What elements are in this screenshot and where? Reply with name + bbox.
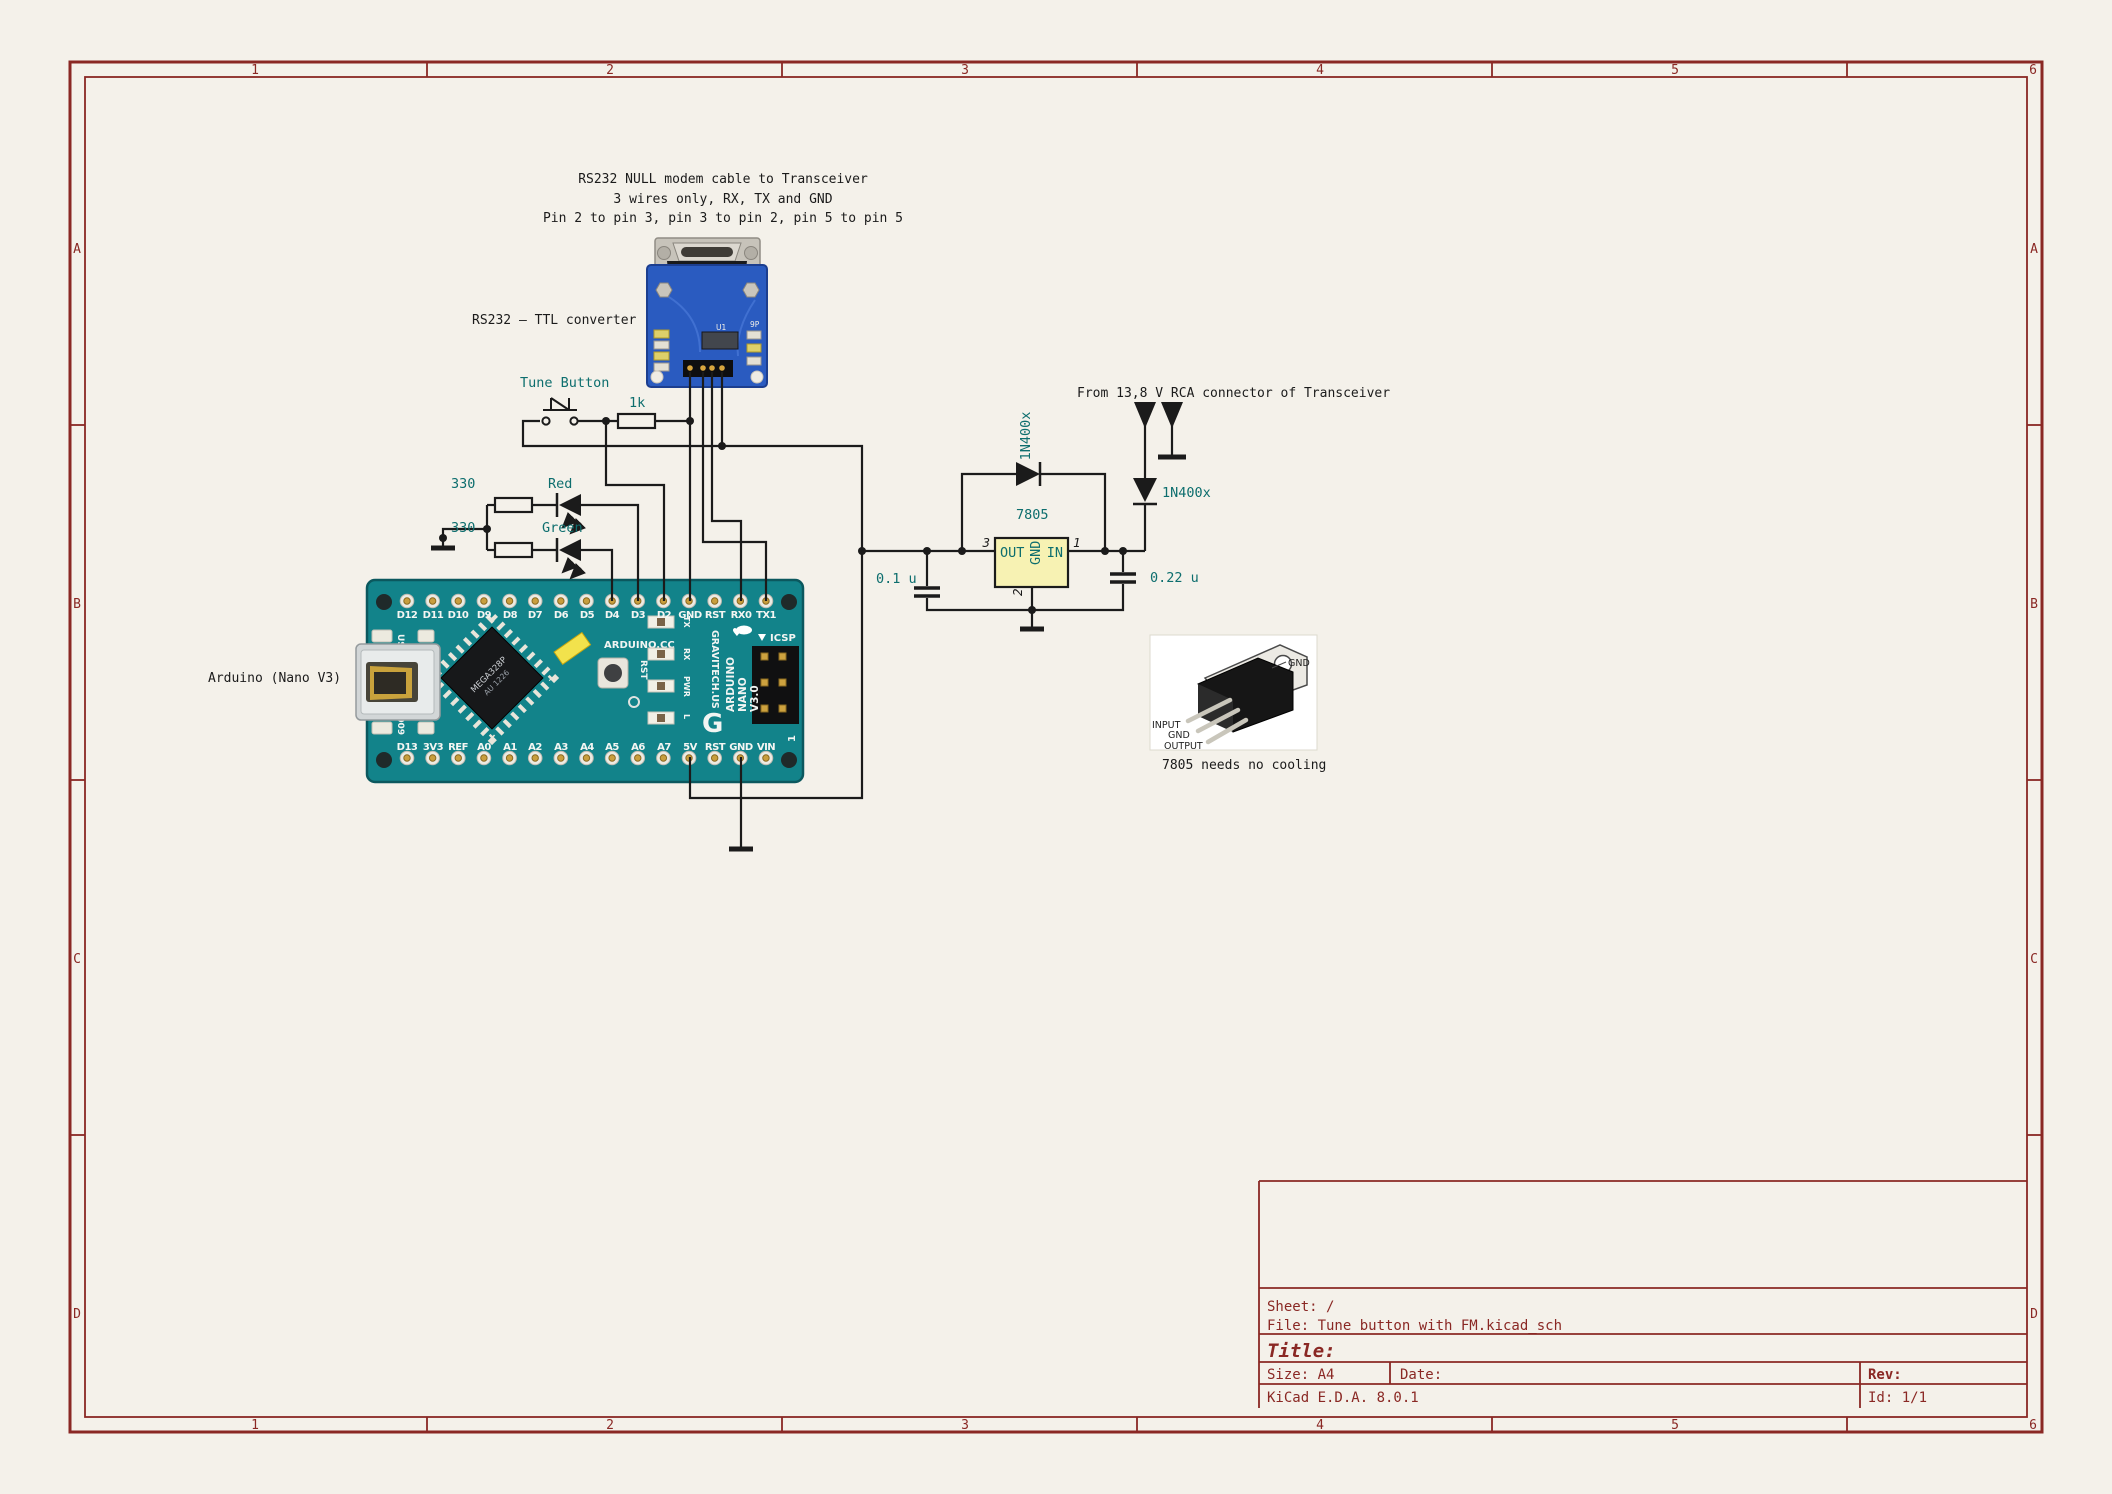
pin-label-bottom: VIN (757, 742, 775, 753)
titleblock-date: Date: (1400, 1367, 1442, 1383)
note-converter: RS232 – TTL converter (472, 313, 637, 328)
pin-label-bottom: 5V (683, 742, 697, 753)
header-pin-center (532, 598, 538, 604)
titleblock-title: Title: (1267, 1340, 1336, 1362)
col-label: 6 (2029, 1418, 2037, 1433)
header-pin-center (558, 755, 564, 761)
titleblock-id: Id: 1/1 (1868, 1390, 1927, 1406)
pin-label-top: D4 (605, 610, 620, 621)
rs232-module-photo: U1 9P (647, 238, 767, 387)
label-led-green: Green (542, 520, 583, 536)
to220-gnd-label: GND (1168, 730, 1190, 741)
header-pin-center (635, 755, 641, 761)
note-null-modem-1: RS232 NULL modem cable to Transceiver (578, 172, 868, 187)
note-supply: From 13,8 V RCA connector of Transceiver (1077, 386, 1390, 401)
led-green (557, 538, 581, 577)
note-null-modem-3: Pin 2 to pin 3, pin 3 to pin 2, pin 5 to… (543, 211, 903, 226)
pin-label-top: GND (678, 610, 702, 621)
brand-line2: NANO (737, 677, 749, 712)
row-label: D (2030, 1307, 2038, 1322)
reg-pin2-number: 2 (1010, 588, 1025, 596)
g-logo: G (702, 709, 723, 739)
label-diode-in: 1N400x (1162, 485, 1211, 501)
label-diode-top: 1N400x (1018, 412, 1034, 461)
col-label: 2 (606, 1418, 614, 1433)
label-c-out: 0.1 u (876, 571, 917, 587)
gravitech-silk: GRAVITECH.US (709, 630, 720, 709)
title-block: Sheet: / File: Tune button with FM.kicad… (1259, 1181, 2027, 1408)
pin-label-bottom: A2 (528, 742, 542, 753)
header-pin-center (583, 755, 589, 761)
header-pin-center (455, 598, 461, 604)
header-pin-center (558, 598, 564, 604)
capacitor-0-22u (1110, 574, 1136, 582)
note-null-modem-2: 3 wires only, RX, TX and GND (613, 192, 832, 207)
rs232-ref-u1: U1 (716, 323, 726, 332)
pin-label-top: TX1 (756, 610, 777, 621)
col-label: 4 (1316, 63, 1324, 78)
pin-label-bottom: A6 (631, 742, 645, 753)
to220-output-label: OUTPUT (1164, 741, 1203, 752)
kicad-schematic-page: 1 2 3 4 5 6 1 2 3 4 5 6 A B C D A B C D (0, 0, 2112, 1494)
label-1k: 1k (629, 395, 645, 411)
col-label: 5 (1671, 63, 1679, 78)
schematic-sheet: 1 2 3 4 5 6 1 2 3 4 5 6 A B C D A B C D (0, 0, 2112, 1494)
pin1-mark: 1 (787, 735, 798, 742)
header-pin-center (429, 598, 435, 604)
pin-label-bottom: A4 (580, 742, 594, 753)
col-label: 2 (606, 63, 614, 78)
pin-label-top: D8 (503, 610, 518, 621)
row-label: B (73, 597, 81, 612)
pin-label-top: D10 (448, 610, 469, 621)
row-label: A (2030, 242, 2038, 257)
cloud-icon (736, 626, 752, 635)
pin-label-top: D7 (528, 610, 543, 621)
pin-label-bottom: RST (705, 742, 726, 753)
wire-to-d2 (606, 421, 664, 601)
label-7805: 7805 (1016, 507, 1049, 523)
resistor-330-green (495, 543, 532, 557)
tune-button-switch (542, 398, 577, 425)
header-pin-center (429, 755, 435, 761)
led-label-l: L (682, 714, 691, 719)
resistor-1k (618, 414, 655, 428)
col-label: 1 (251, 1418, 259, 1433)
row-label: B (2030, 597, 2038, 612)
row-label: A (73, 242, 81, 257)
pin-label-top: D12 (397, 610, 418, 621)
diode-1n400x-top (1016, 462, 1040, 486)
reg-pin1-number: 1 (1073, 535, 1081, 550)
row-label: C (2030, 952, 2038, 967)
header-pin-center (404, 755, 410, 761)
header-pin-center (481, 598, 487, 604)
header-pin-center (763, 755, 769, 761)
titleblock-file: File: Tune button with FM.kicad_sch (1267, 1318, 1562, 1334)
label-tune-button: Tune Button (520, 375, 609, 391)
titleblock-rev: Rev: (1868, 1367, 1902, 1383)
label-330-green: 330 (451, 520, 475, 536)
header-pin-center (532, 755, 538, 761)
col-label: 6 (2029, 63, 2037, 78)
pin-label-top: D6 (554, 610, 569, 621)
pin-label-top: D3 (631, 610, 646, 621)
header-pin-center (583, 598, 589, 604)
pin-label-top: D9 (477, 610, 492, 621)
brand-line1: ARDUINO (725, 657, 737, 712)
col-label: 4 (1316, 1418, 1324, 1433)
titleblock-sheet: Sheet: / (1267, 1299, 1334, 1315)
titleblock-size: Size: A4 (1267, 1367, 1334, 1383)
reg-pin3-number: 3 (981, 535, 990, 550)
header-pin-center (609, 755, 615, 761)
reg-in-pin-label: IN (1047, 545, 1063, 561)
titleblock-tool: KiCad E.D.A. 8.0.1 (1267, 1390, 1419, 1406)
capacitor-0-1u (914, 588, 940, 596)
icsp-silk: ICSP (770, 633, 796, 644)
header-pin-center (711, 755, 717, 761)
note-cooling: 7805 needs no cooling (1162, 758, 1326, 773)
pin-label-bottom: GND (729, 742, 753, 753)
pin-label-top: RST (705, 610, 726, 621)
label-330-red: 330 (451, 476, 475, 492)
pin-label-bottom: REF (448, 742, 468, 753)
reg-out-pin-label: OUT (1000, 545, 1024, 561)
pin-label-bottom: A5 (605, 742, 619, 753)
brand-line3: V3.0 (749, 685, 761, 712)
row-label: D (73, 1307, 81, 1322)
pin-label-top: D2 (657, 610, 672, 621)
pin-label-bottom: A1 (503, 742, 517, 753)
header-pin-center (404, 598, 410, 604)
led-label-rx: RX (682, 648, 691, 661)
resistor-330-red (495, 498, 532, 512)
pin-label-top: D11 (423, 610, 444, 621)
regulator-7805: OUT IN GND 3 1 2 (981, 535, 1080, 596)
pin-label-bottom: A7 (657, 742, 671, 753)
rst-silk: RST (638, 660, 648, 680)
header-pin-center (711, 598, 717, 604)
diode-1n400x-input (1133, 478, 1157, 504)
header-pin-center (481, 755, 487, 761)
col-label: 3 (961, 1418, 969, 1433)
pin-label-bottom: A3 (554, 742, 568, 753)
header-pin-center (506, 598, 512, 604)
label-led-red: Red (548, 476, 572, 492)
pin-label-bottom: A0 (477, 742, 491, 753)
rs232-ref-9p: 9P (750, 320, 760, 329)
reg-gnd-pin-label: GND (1028, 541, 1044, 565)
pin-label-top: D5 (580, 610, 595, 621)
header-pin-center (660, 755, 666, 761)
pin-label-bottom: 3V3 (423, 742, 444, 753)
header-pin-center (455, 755, 461, 761)
col-label: 3 (961, 63, 969, 78)
mini-usb-connector (356, 630, 440, 734)
pin-label-bottom: D13 (397, 742, 418, 753)
note-arduino: Arduino (Nano V3) (208, 671, 341, 686)
header-pin-center (506, 755, 512, 761)
to220-tab-label: GND (1288, 658, 1310, 669)
label-c-in: 0.22 u (1150, 570, 1199, 586)
pin-label-top: RX0 (731, 610, 752, 621)
col-label: 1 (251, 63, 259, 78)
led-label-pwr: PWR (682, 676, 691, 697)
col-label: 5 (1671, 1418, 1679, 1433)
to220-drawing: INPUT GND OUTPUT GND (1150, 635, 1317, 752)
wire-rs232-rx0 (712, 372, 741, 601)
row-label: C (73, 952, 81, 967)
